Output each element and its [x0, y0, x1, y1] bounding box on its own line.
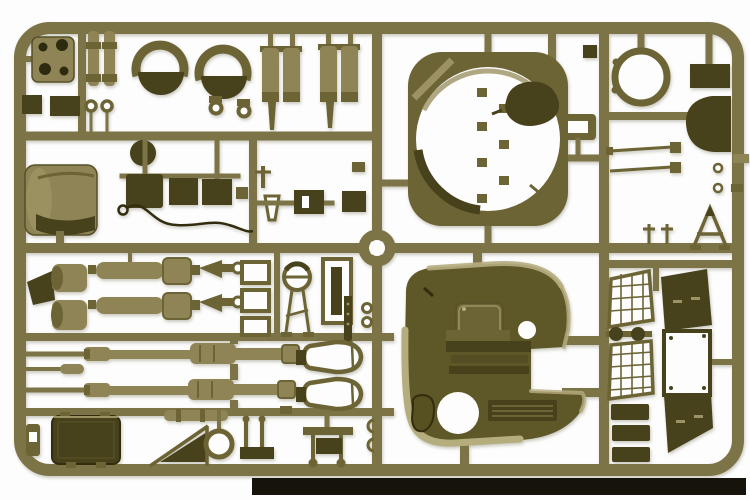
photo-of-model-kit-sprue: Photograph of an olive-drab injection-mo… — [0, 0, 750, 500]
turret-gate — [562, 336, 606, 345]
mounting-plate — [26, 37, 74, 82]
frame-panel — [664, 331, 710, 395]
mantlet-drum — [25, 165, 97, 248]
commander-hatch-opening — [437, 392, 479, 434]
mesh-basket-1 — [609, 271, 653, 327]
frame-brackets — [242, 262, 269, 335]
track-pads — [611, 404, 650, 462]
fender-panel-top — [661, 269, 712, 331]
loader-hatch-opening — [518, 321, 536, 339]
frame-nub — [733, 154, 749, 163]
hatch-ring — [612, 51, 668, 103]
hub-ring — [364, 235, 391, 262]
teardrop-detail — [412, 395, 434, 431]
turret-gate — [460, 444, 469, 468]
vent-grille — [488, 400, 557, 421]
sprue-illustration — [0, 0, 750, 500]
mesh-basket-2 — [609, 341, 653, 399]
drop-tank-2 — [296, 379, 361, 409]
frame-nub — [731, 184, 743, 192]
funnel-part — [265, 196, 279, 220]
turret-ring — [408, 52, 568, 226]
shadow-strip — [252, 478, 746, 495]
drop-tank-1 — [296, 342, 361, 372]
latch-plate — [26, 424, 40, 456]
hatch-lid-plate — [690, 64, 730, 88]
stowage-box — [52, 412, 120, 468]
